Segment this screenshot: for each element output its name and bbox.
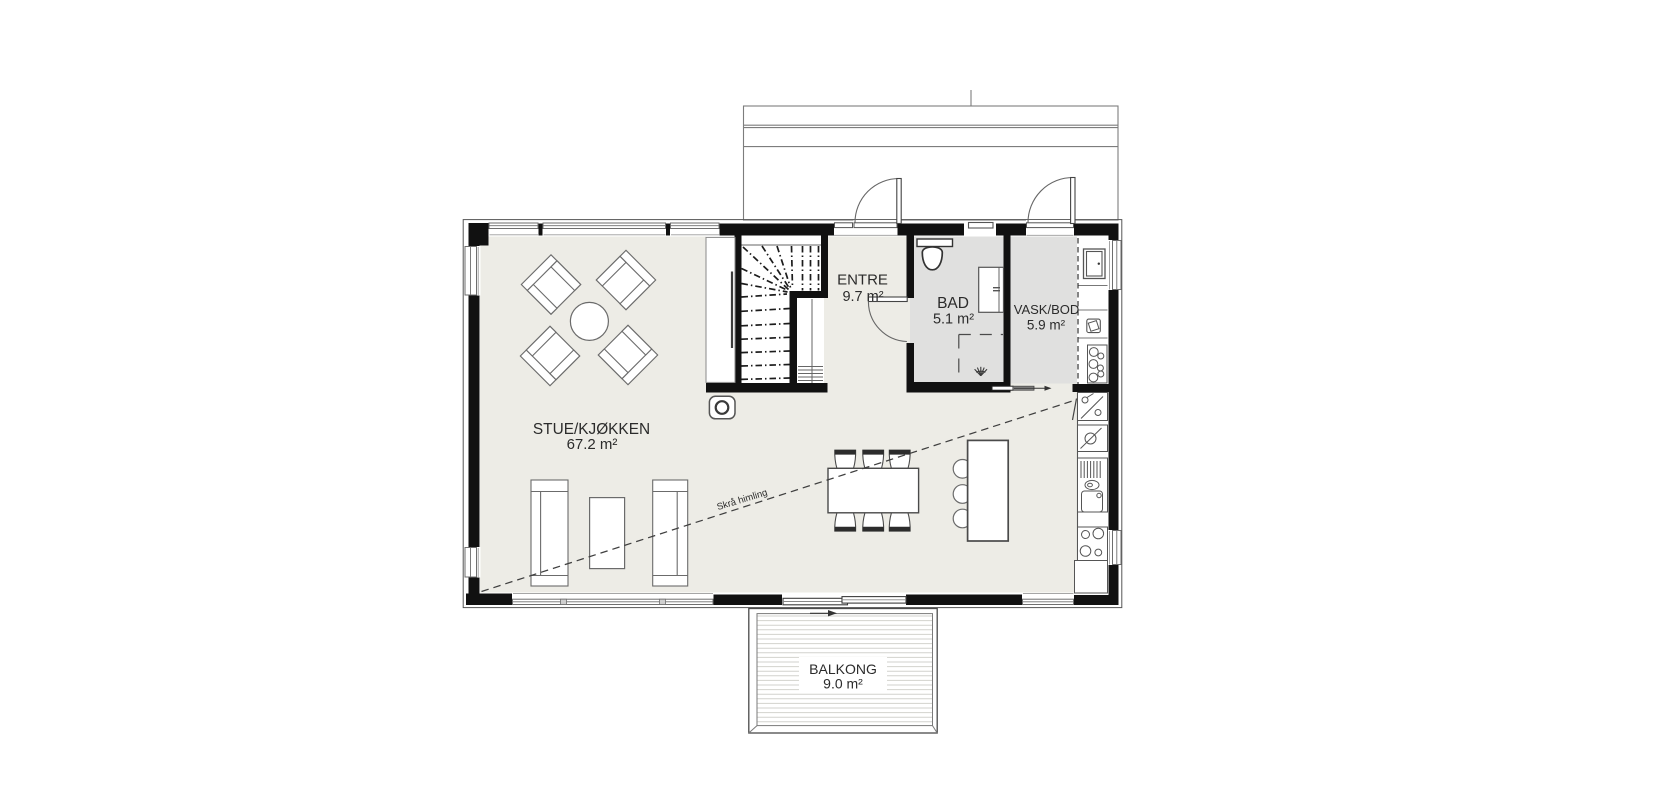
svg-text:5.9 m²: 5.9 m² <box>1027 318 1066 333</box>
svg-text:VASK/BOD: VASK/BOD <box>1014 302 1080 317</box>
svg-text:ENTRE: ENTRE <box>837 272 888 289</box>
svg-text:BAD: BAD <box>937 295 969 312</box>
svg-text:5.1 m²: 5.1 m² <box>933 312 974 328</box>
svg-text:9.0 m²: 9.0 m² <box>823 676 863 692</box>
svg-text:9.7 m²: 9.7 m² <box>842 289 883 305</box>
svg-text:67.2 m²: 67.2 m² <box>567 436 618 453</box>
